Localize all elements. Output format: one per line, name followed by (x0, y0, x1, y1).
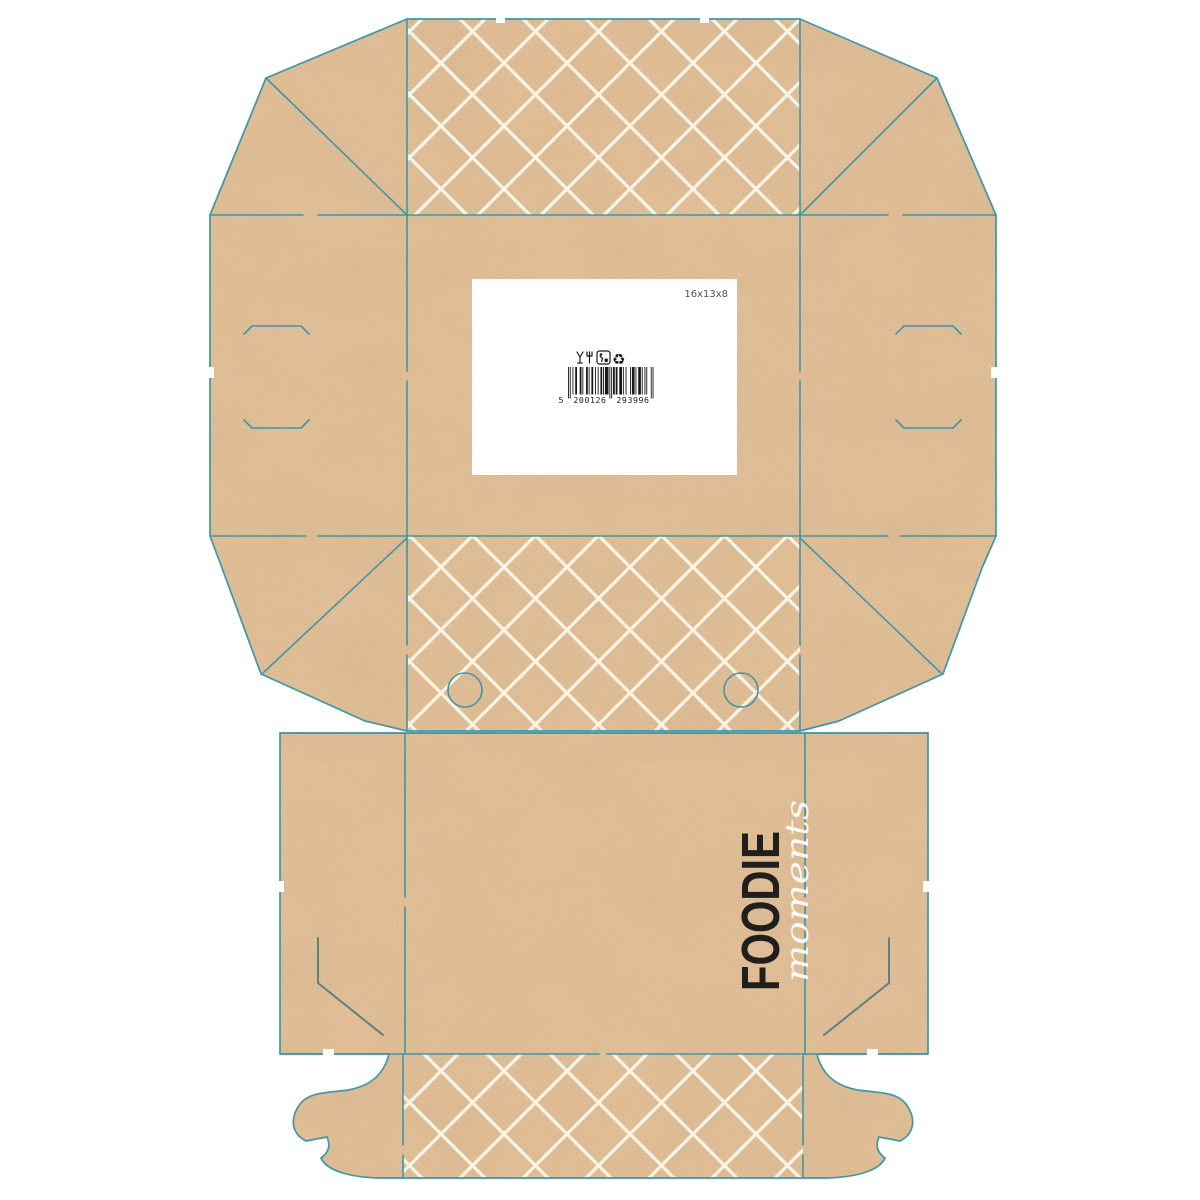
barcode-bar (651, 367, 652, 399)
barcode-bar (568, 367, 569, 399)
barcode-bar (653, 367, 654, 399)
barcode-bar (642, 367, 643, 395)
barcode-bar (616, 367, 618, 395)
barcode-bar (580, 367, 582, 395)
box-dieline: 16x13x8 ♻ 5 200126 293996 FOODIE moments (0, 0, 1200, 1200)
label-background (472, 279, 737, 475)
nick (867, 1049, 878, 1058)
crosshatch-bottom-flap (403, 1054, 803, 1178)
barcode-bar (632, 367, 635, 395)
product-label: 16x13x8 ♻ 5 200126 293996 (472, 279, 737, 475)
barcode-bar (600, 367, 602, 395)
barcode-bar (609, 367, 610, 399)
barcode-bar (613, 367, 615, 395)
barcode-bar (611, 367, 612, 399)
nick (991, 367, 1000, 378)
barcode-bar (589, 367, 590, 395)
crosshatch-mid-band (407, 536, 800, 731)
barcode-group2: 293996 (616, 395, 649, 405)
nick (923, 881, 932, 892)
barcode-bar (646, 367, 647, 395)
recycle-icon: ♻ (612, 351, 625, 369)
nick (700, 14, 709, 23)
barcode-bar (582, 367, 583, 395)
barcode-bar (645, 367, 646, 395)
barcode-bar (575, 367, 577, 395)
kraft-surface (190, 5, 1010, 1195)
crosshatch-top-flap (407, 19, 800, 215)
barcode-bar (636, 367, 637, 395)
nick (323, 1049, 334, 1058)
barcode-bar (573, 367, 574, 395)
barcode-bar (586, 367, 588, 395)
barcode-bar (570, 367, 571, 399)
barcode: 5 200126 293996 (558, 367, 653, 405)
barcode-bar (591, 367, 593, 395)
nick (205, 367, 214, 378)
brand-secondary-text: moments (778, 800, 816, 982)
size-label: 16x13x8 (684, 289, 728, 300)
barcode-bar (619, 367, 622, 395)
barcode-bar (603, 367, 604, 395)
nick (275, 881, 284, 892)
barcode-bar (638, 367, 641, 395)
barcode-bar (626, 367, 627, 395)
barcode-bar (630, 367, 631, 395)
nick (496, 14, 505, 23)
barcode-bar (595, 367, 596, 395)
artboard: 16x13x8 ♻ 5 200126 293996 FOODIE moments (0, 0, 1200, 1200)
barcode-first-digit: 5 (558, 395, 564, 405)
barcode-bar (623, 367, 624, 395)
barcode-group1: 200126 (573, 395, 606, 405)
barcode-bar (605, 367, 609, 395)
barcode-bar (598, 367, 599, 395)
